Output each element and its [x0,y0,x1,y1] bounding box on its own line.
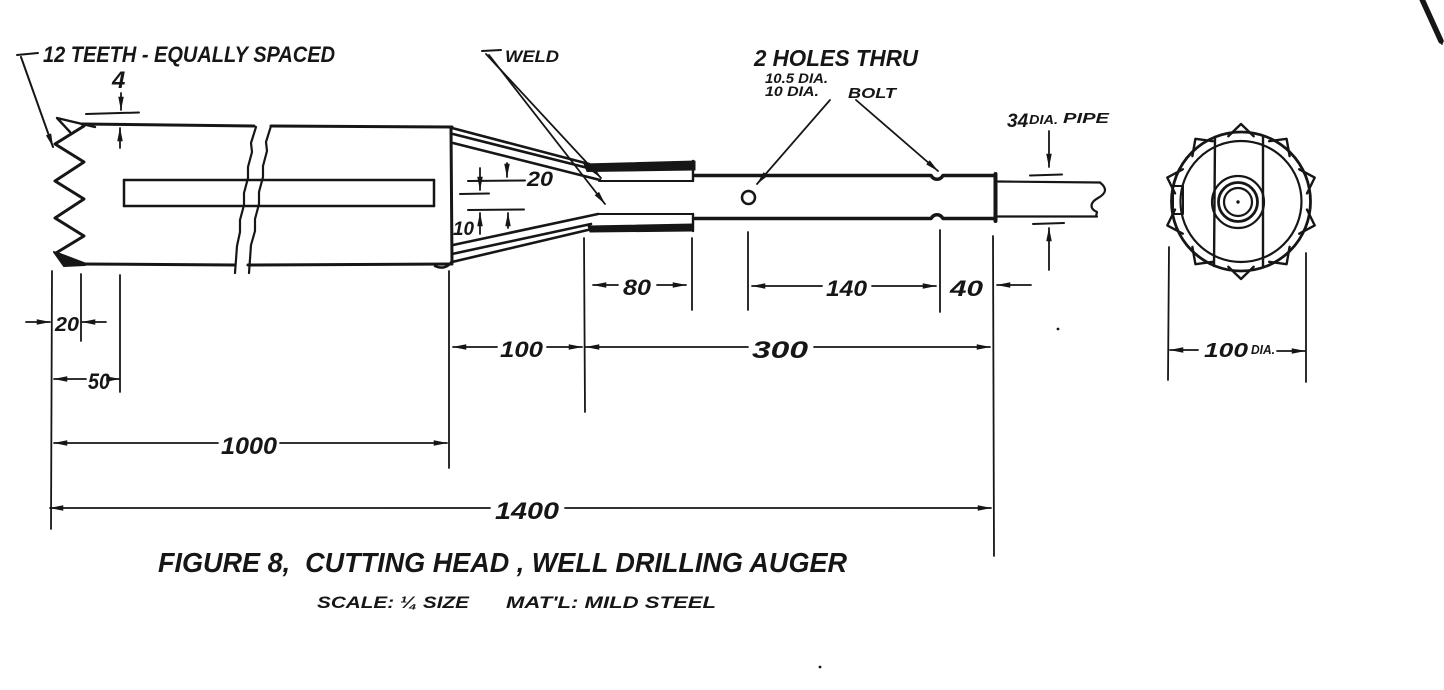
svg-text:DIA.: DIA. [1029,112,1058,127]
svg-text:80: 80 [623,275,652,300]
svg-text:300: 300 [752,337,809,364]
svg-text:20: 20 [526,168,553,191]
svg-text:DIA.: DIA. [1251,342,1275,357]
svg-text:100: 100 [500,337,544,362]
svg-text:BOLT: BOLT [848,85,898,102]
svg-text:WELD: WELD [505,47,559,66]
svg-text:140: 140 [826,276,868,301]
svg-text:34: 34 [1007,111,1029,132]
svg-text:40: 40 [949,276,984,301]
svg-text:1400: 1400 [495,498,560,525]
svg-text:1000: 1000 [221,433,278,460]
svg-text:SCALE: ¼ SIZE: SCALE: ¼ SIZE [317,594,470,612]
svg-text:MAT'L: MILD STEEL: MAT'L: MILD STEEL [506,594,716,612]
svg-text:100: 100 [1204,340,1248,362]
svg-text:2 HOLES THRU: 2 HOLES THRU [753,45,919,71]
svg-text:12 TEETH - EQUALLY SPACED: 12 TEETH - EQUALLY SPACED [43,42,335,67]
svg-text:FIGURE 8, CUTTING HEAD , WELL: FIGURE 8, CUTTING HEAD , WELL DRILLING A… [158,547,848,578]
svg-text:PIPE: PIPE [1063,110,1110,127]
svg-text:10: 10 [453,219,474,240]
svg-text:4: 4 [111,67,125,94]
svg-text:20: 20 [54,314,79,336]
svg-text:50: 50 [88,369,111,394]
svg-text:10 DIA.: 10 DIA. [765,84,819,99]
